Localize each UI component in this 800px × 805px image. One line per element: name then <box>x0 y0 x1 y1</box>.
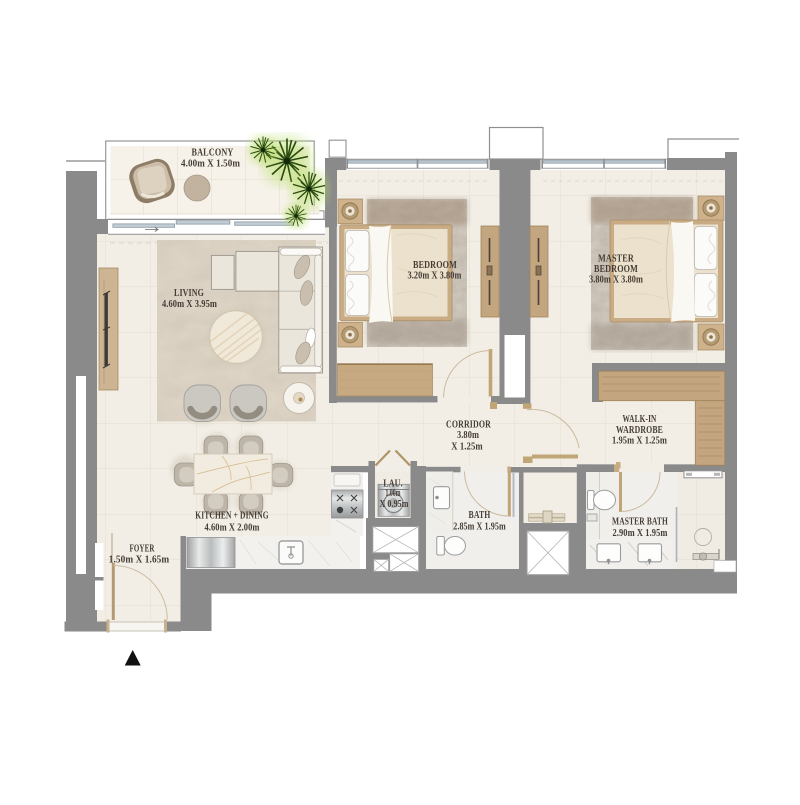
svg-text:3.80m X 3.80m: 3.80m X 3.80m <box>589 275 643 286</box>
svg-text:1.50m X 1.65m: 1.50m X 1.65m <box>109 555 170 566</box>
svg-text:LIVING: LIVING <box>174 287 204 299</box>
svg-text:KITCHEN + DINING: KITCHEN + DINING <box>195 510 269 522</box>
svg-text:3.20m X 3.80m: 3.20m X 3.80m <box>408 271 462 282</box>
svg-text:2.90m X 1.95m: 2.90m X 1.95m <box>613 528 668 539</box>
svg-text:WARDROBE: WARDROBE <box>616 424 663 436</box>
svg-text:BALCONY: BALCONY <box>192 147 234 159</box>
svg-text:2.85m X 1.95m: 2.85m X 1.95m <box>453 522 506 533</box>
svg-text:3.80m: 3.80m <box>457 430 479 441</box>
svg-text:MASTER BATH: MASTER BATH <box>612 516 668 528</box>
svg-text:X 0.95m: X 0.95m <box>380 499 409 510</box>
svg-text:CORRIDOR: CORRIDOR <box>446 419 492 431</box>
svg-text:4.00m X 1.50m: 4.00m X 1.50m <box>181 159 241 170</box>
svg-text:FOYER: FOYER <box>130 543 156 555</box>
svg-text:1.95m X 1.25m: 1.95m X 1.25m <box>612 436 667 447</box>
svg-text:4.60m X 2.00m: 4.60m X 2.00m <box>205 523 260 534</box>
svg-text:BEDROOM: BEDROOM <box>594 263 638 275</box>
svg-text:BEDROOM: BEDROOM <box>413 259 457 271</box>
svg-text:1.00m: 1.00m <box>386 488 401 499</box>
svg-text:BATH: BATH <box>469 509 491 521</box>
svg-text:X 1.25m: X 1.25m <box>451 442 483 453</box>
svg-text:4.60m X 3.95m: 4.60m X 3.95m <box>162 299 217 310</box>
